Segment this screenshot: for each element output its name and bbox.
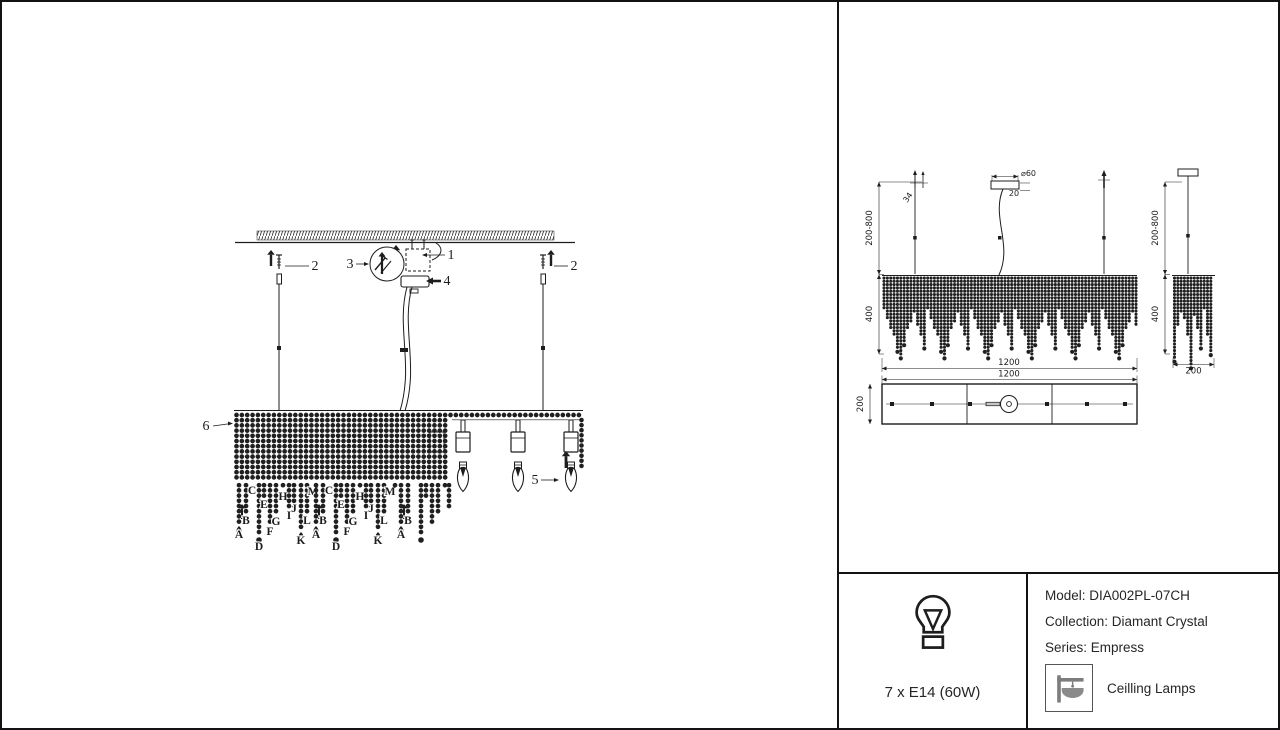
strand-letter-B: B xyxy=(242,515,250,527)
dim-front-width: 1200 xyxy=(998,358,1020,368)
strand-letter-D: D xyxy=(332,541,340,553)
strand-letter-K: K xyxy=(374,535,383,547)
crystal-strands: ABCDEFGHIJKLMABCDEFGHIJKLMAB xyxy=(235,483,452,553)
strand-letter-H: H xyxy=(279,491,288,503)
part-callout-5: 5 xyxy=(532,473,539,488)
strand-letter-C: C xyxy=(248,485,256,497)
dim-plan-depth: 200 xyxy=(856,396,866,412)
strand-letter-G: G xyxy=(349,516,358,528)
dim-front-suspension: 200-800 xyxy=(865,210,875,246)
ceiling-lamp-icon xyxy=(1049,668,1089,708)
hanger-left: 2 xyxy=(267,250,318,410)
bulb-spec: 7 x E14 (60W) xyxy=(885,684,981,701)
assembly-diagram: 22134ABCDEFGHIJKLMABCDEFGHIJKLMAB65 xyxy=(203,231,584,553)
strand-letter-H: H xyxy=(356,491,365,503)
part-callout-1: 1 xyxy=(448,248,455,263)
callout-6: 6 xyxy=(203,419,234,434)
strand-letter-E: E xyxy=(260,499,268,511)
dim-plan-width: 1200 xyxy=(998,370,1020,380)
hanger-right: 2 xyxy=(540,250,578,410)
dim-canopy-height: 20 xyxy=(1009,189,1019,198)
strand-letter-E: E xyxy=(337,499,345,511)
dimension-views: ⌀602034200-80040012001200200200-80040020… xyxy=(856,169,1215,424)
strand-letter-L: L xyxy=(303,515,311,527)
strand-letter-B: B xyxy=(319,515,327,527)
part-callout-6: 6 xyxy=(203,419,210,434)
series-line: Series: Empress xyxy=(1045,635,1280,661)
strand-letter-A: A xyxy=(312,529,321,541)
lamps: 5 xyxy=(456,420,578,492)
spec-cell: Model: DIA002PL-07CH Collection: Diamant… xyxy=(1028,574,1280,730)
strand-letter-L: L xyxy=(380,515,388,527)
part-callout-4: 4 xyxy=(444,274,451,289)
strand-letter-C: C xyxy=(325,485,333,497)
light-bulb-icon xyxy=(911,594,955,676)
strand-letter-A: A xyxy=(397,529,406,541)
strand-letter-B: B xyxy=(404,515,412,527)
strand-letter-J: J xyxy=(291,503,297,515)
dim-side-height: 400 xyxy=(1151,306,1161,322)
collection-line: Collection: Diamant Crystal xyxy=(1045,609,1280,635)
strand-letter-D: D xyxy=(255,541,263,553)
side-view: 200-800400200 xyxy=(1151,169,1215,377)
product-info-panel: 7 x E14 (60W) Model: DIA002PL-07CH Colle… xyxy=(839,572,1280,730)
dim-front-height: 400 xyxy=(865,306,875,322)
part-callout-2: 2 xyxy=(312,259,319,274)
ceiling xyxy=(235,231,575,243)
category-row: Ceilling Lamps xyxy=(1045,664,1280,712)
category-label: Ceilling Lamps xyxy=(1107,681,1196,696)
part-callout-3: 3 xyxy=(347,257,354,272)
bulb-spec-cell: 7 x E14 (60W) xyxy=(839,574,1028,730)
dim-side-depth: 200 xyxy=(1185,367,1201,377)
strand-letter-M: M xyxy=(385,486,396,498)
instruction-sheet: 22134ABCDEFGHIJKLMABCDEFGHIJKLMAB65⌀6020… xyxy=(0,0,1280,730)
strand-letter-K: K xyxy=(297,535,306,547)
canopy-assembly: 134 xyxy=(347,240,455,411)
dim-hanger: 34 xyxy=(901,191,914,205)
bead-curtain xyxy=(234,418,447,480)
strand-letter-G: G xyxy=(272,516,281,528)
ceiling-lamp-icon-box xyxy=(1045,664,1093,712)
part-callout-2b: 2 xyxy=(571,259,578,274)
front-view: ⌀602034200-8004001200 xyxy=(865,169,1138,372)
dim-side-suspension: 200-800 xyxy=(1151,210,1161,246)
strand-letter-A: A xyxy=(235,529,244,541)
strand-letter-J: J xyxy=(368,503,374,515)
model-line: Model: DIA002PL-07CH xyxy=(1045,583,1280,609)
plan-view: 1200200 xyxy=(856,370,1137,425)
dim-canopy-diameter: ⌀60 xyxy=(1021,169,1036,178)
